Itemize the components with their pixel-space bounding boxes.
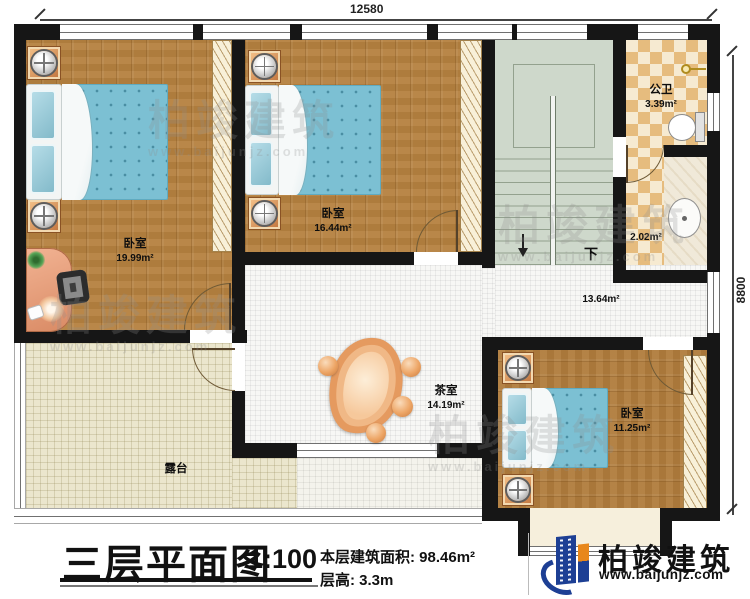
wall-segment bbox=[437, 443, 482, 458]
door-leaf bbox=[229, 283, 231, 330]
scale-label: 1:100 bbox=[248, 544, 317, 575]
room-name: 露台 bbox=[165, 463, 188, 475]
window bbox=[438, 24, 512, 40]
wall-segment bbox=[245, 252, 414, 265]
bedroom1-closet bbox=[212, 40, 232, 252]
footer-divider bbox=[528, 533, 529, 595]
pouf-seat bbox=[401, 357, 421, 377]
pouf-seat bbox=[392, 396, 413, 417]
room-area: 3.39m² bbox=[645, 99, 677, 110]
logo-website: www.baijunjz.com bbox=[599, 567, 724, 582]
nightstand bbox=[502, 352, 534, 384]
dimension-height-label: 8800 bbox=[734, 260, 748, 320]
nightstand bbox=[27, 46, 61, 80]
window bbox=[517, 24, 587, 40]
stair-rail bbox=[550, 96, 556, 265]
door-leaf bbox=[691, 350, 693, 395]
title-underline-thick bbox=[60, 578, 312, 582]
bed-pillow bbox=[30, 90, 56, 140]
floor-area-text: 本层建筑面积: 98.46m² bbox=[320, 546, 475, 567]
room-name: 卧室 bbox=[322, 208, 345, 220]
nightstand bbox=[248, 50, 281, 83]
room-name: 公卫 bbox=[650, 84, 673, 96]
stair-arrow-head bbox=[518, 248, 528, 262]
room-area: 14.19m² bbox=[427, 400, 464, 411]
logo-tower-windows bbox=[568, 538, 571, 580]
wall-segment bbox=[232, 40, 245, 343]
wall-segment bbox=[613, 40, 626, 137]
wall-segment bbox=[613, 270, 720, 283]
tearoom-window bbox=[297, 443, 437, 458]
pouf-seat bbox=[366, 423, 386, 443]
room-area: 2.02m² bbox=[630, 232, 662, 243]
door-leaf bbox=[192, 348, 235, 350]
lamp-icon bbox=[32, 51, 56, 75]
door-leaf bbox=[626, 145, 628, 183]
tearoom-label: 茶室 14.19m² bbox=[427, 385, 464, 413]
dimension-tick bbox=[34, 8, 45, 19]
wall-segment bbox=[482, 40, 495, 268]
room-area: 16.44m² bbox=[314, 223, 351, 234]
lamp-icon bbox=[507, 479, 529, 501]
nightstand bbox=[502, 474, 534, 506]
dimension-tick bbox=[706, 8, 717, 19]
nightstand bbox=[27, 199, 61, 233]
toilet-tank bbox=[695, 112, 705, 142]
nightstand bbox=[248, 197, 281, 230]
hall-connector-floor bbox=[482, 268, 495, 337]
wall-segment bbox=[14, 24, 26, 343]
dimension-width-label: 12580 bbox=[350, 2, 383, 16]
room-name: 茶室 bbox=[435, 385, 458, 397]
wall-segment bbox=[693, 337, 707, 350]
logo-tower2-icon bbox=[578, 543, 589, 582]
bathroom-label: 公卫 3.39m² bbox=[645, 84, 677, 112]
wall-segment bbox=[664, 145, 707, 157]
bed-pillow bbox=[249, 91, 273, 137]
bed-pillow bbox=[249, 141, 273, 187]
floor-plan-canvas: 卧室 19.99m² 卧室 16.44m² 卧室 11.25m² 公卫 3.39… bbox=[0, 0, 750, 599]
room-area: 19.99m² bbox=[116, 253, 153, 264]
window bbox=[707, 93, 720, 131]
terrace-railing-bottom bbox=[14, 508, 482, 524]
bedroom2-closet bbox=[460, 40, 482, 252]
hall-label: 13.64m² bbox=[582, 294, 619, 306]
company-logo bbox=[540, 534, 592, 596]
wall-segment bbox=[232, 443, 297, 458]
down-text: 下 bbox=[584, 246, 598, 262]
toilet-bowl bbox=[668, 114, 696, 141]
bed-pillow bbox=[506, 393, 528, 426]
wall-segment bbox=[613, 177, 626, 270]
room-name: 卧室 bbox=[620, 408, 643, 420]
pouf-seat bbox=[318, 356, 338, 376]
lamp-icon bbox=[32, 204, 56, 228]
stairs-down-label: 下 bbox=[584, 246, 598, 263]
washroom-label: 2.02m² bbox=[630, 232, 662, 244]
lamp-icon bbox=[253, 202, 276, 225]
bedroom2-label: 卧室 16.44m² bbox=[314, 208, 351, 236]
floor-height-text: 层高: 3.3m bbox=[320, 569, 393, 590]
logo-tower-icon bbox=[556, 535, 576, 585]
title-underline-thin bbox=[60, 585, 318, 587]
dimension-line-top bbox=[40, 19, 712, 21]
room-area: 13.64m² bbox=[582, 294, 619, 305]
logo-tower-windows bbox=[560, 539, 563, 581]
lamp-icon bbox=[507, 357, 529, 379]
plant-icon bbox=[27, 251, 45, 269]
window bbox=[302, 24, 427, 40]
bed-pillow bbox=[30, 144, 56, 194]
window bbox=[60, 24, 193, 40]
terrace-floor-ext-light bbox=[297, 458, 482, 508]
bedroom3-label: 卧室 11.25m² bbox=[614, 408, 651, 436]
tea-table bbox=[330, 337, 402, 435]
terrace-floor-ext bbox=[232, 458, 297, 508]
sink-faucet bbox=[682, 216, 687, 221]
towel-ring-stem bbox=[690, 68, 706, 70]
bed-pillow bbox=[506, 429, 528, 462]
terrace-railing-left bbox=[14, 343, 26, 508]
lamp-icon bbox=[253, 55, 276, 78]
wall-segment bbox=[482, 337, 643, 350]
door-leaf bbox=[456, 210, 458, 252]
bedroom1-label: 卧室 19.99m² bbox=[116, 238, 153, 266]
window bbox=[707, 272, 720, 333]
terrace-label: 露台 bbox=[165, 463, 188, 477]
room-area: 11.25m² bbox=[614, 423, 651, 434]
room-name: 卧室 bbox=[124, 238, 147, 250]
window bbox=[203, 24, 290, 40]
window bbox=[638, 24, 688, 40]
wall-segment bbox=[482, 337, 498, 521]
